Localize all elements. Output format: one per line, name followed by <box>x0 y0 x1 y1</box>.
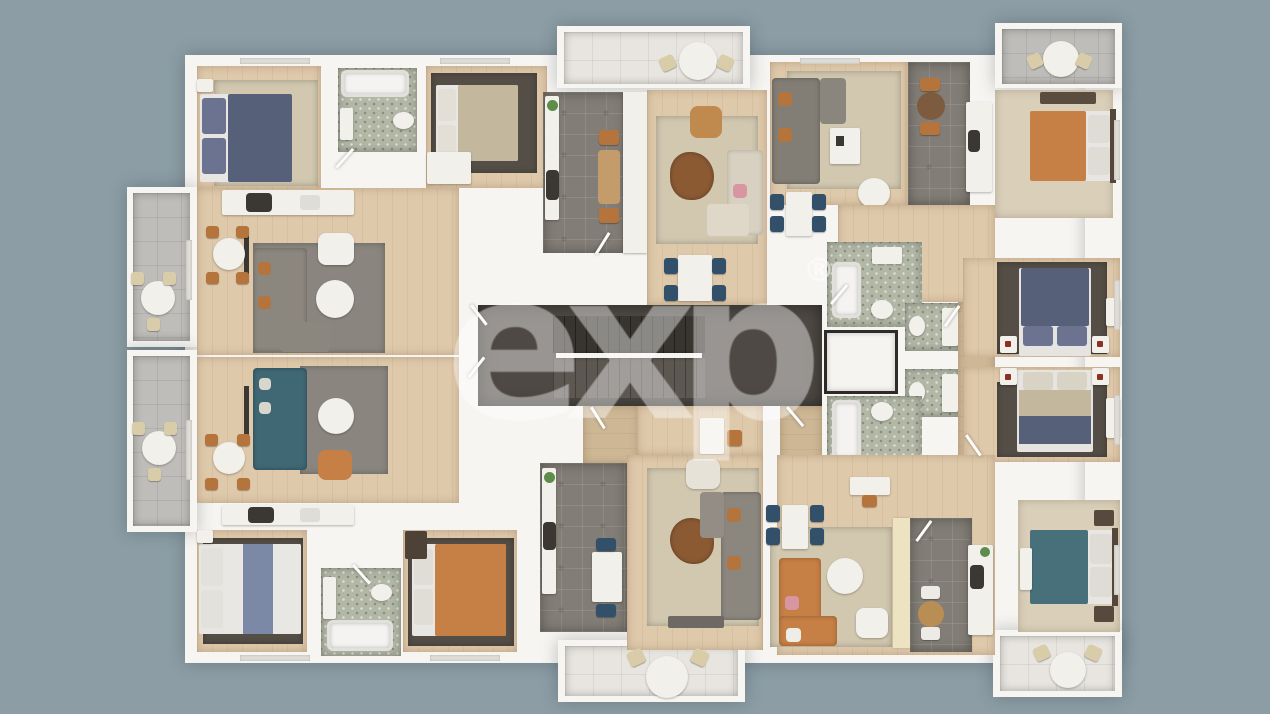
bed-pillow <box>1090 534 1112 564</box>
window <box>440 58 510 64</box>
bed-duvet <box>458 85 518 161</box>
coffee-table <box>827 558 863 594</box>
bathroom-sink <box>323 577 336 619</box>
toilet <box>871 300 893 319</box>
bed-double-navy <box>200 94 292 182</box>
console-decor <box>836 136 844 146</box>
swivel-chair <box>858 178 890 208</box>
patio-table <box>141 281 175 315</box>
sofa-pillow <box>733 184 747 198</box>
watermark-registered-icon: ® <box>803 251 835 289</box>
bed-pillow <box>1090 567 1112 597</box>
sofa-chaise <box>700 492 724 538</box>
stove-cooktop <box>248 507 274 523</box>
patio-table <box>679 42 717 80</box>
bed-pillow <box>202 98 226 134</box>
bed-duvet <box>228 94 292 182</box>
bathroom-sink <box>872 247 902 264</box>
wc-vanity <box>942 308 958 346</box>
dining-chair <box>236 272 249 284</box>
stove-cooktop <box>968 130 980 152</box>
sofa-pillow <box>778 92 792 106</box>
plant <box>980 547 990 557</box>
nightstand <box>197 530 213 543</box>
nightstand <box>197 79 213 92</box>
dining-chair <box>206 226 219 238</box>
bed-duvet <box>1021 268 1089 326</box>
elevator <box>824 330 898 394</box>
window <box>1114 120 1120 180</box>
toilet <box>909 316 925 336</box>
kitchen-chair <box>596 538 616 551</box>
dining-chair <box>237 434 250 446</box>
kitchen-chair <box>596 604 616 617</box>
kitchen-chair <box>599 130 619 145</box>
sofa-pillow <box>785 596 799 610</box>
toilet <box>871 402 893 421</box>
stove-cooktop <box>246 193 272 212</box>
sofa-pillow <box>258 262 271 275</box>
stove-cooktop <box>546 170 559 200</box>
bed-pillow <box>1023 372 1053 390</box>
coffee-table <box>670 152 714 200</box>
bed-double-beige <box>436 85 518 161</box>
kitchen-chair <box>599 208 619 223</box>
bed-pillow <box>438 89 456 121</box>
window <box>430 655 500 661</box>
bathroom-sink <box>340 108 353 140</box>
armchair <box>690 106 722 138</box>
nightstand <box>1094 510 1114 526</box>
window <box>240 655 310 661</box>
sofa-chaise <box>280 322 330 352</box>
dining-table <box>213 442 245 474</box>
bathtub <box>327 620 393 651</box>
kitchen-chair <box>920 78 940 91</box>
bed-double-orange <box>1030 111 1114 181</box>
bed-duvet <box>1019 416 1091 444</box>
kitchen-sink <box>300 508 320 522</box>
stove-cooktop <box>970 565 984 589</box>
bed-pillow <box>1057 372 1087 390</box>
sofa-pillow <box>259 402 271 414</box>
closet-panel <box>893 518 910 648</box>
desk-stool <box>862 495 877 507</box>
sofa-pillow <box>258 296 271 309</box>
dining-chair <box>810 528 824 545</box>
kitchen-sink <box>300 195 320 210</box>
wc-vanity <box>942 374 958 412</box>
bed-blanket <box>1019 390 1091 416</box>
sofa-chaise <box>820 78 846 124</box>
bed-duvet <box>435 544 506 636</box>
kitchen-table <box>917 92 945 120</box>
plant <box>547 100 558 111</box>
shelf <box>1040 92 1096 104</box>
patio-table <box>142 431 176 465</box>
dining-chair <box>236 226 249 238</box>
dining-chair <box>812 216 826 232</box>
vanity-desk <box>850 477 890 495</box>
bed-duvet-stripe <box>243 544 273 634</box>
stove-cooktop <box>543 522 556 550</box>
dining-table <box>213 238 245 270</box>
balcony-left-upper-floor <box>133 193 190 341</box>
bed-double-blue-white <box>199 544 301 634</box>
kitchen-table <box>918 601 944 627</box>
armchair <box>856 608 888 638</box>
patio-table <box>1043 41 1079 77</box>
window <box>1114 395 1120 445</box>
kitchen-table <box>592 552 622 602</box>
dining-chair <box>205 434 218 446</box>
wardrobe <box>427 152 471 184</box>
floor-plan-render: exp ® <box>0 0 1270 714</box>
plant <box>544 472 555 483</box>
kitchen-counter <box>222 190 354 215</box>
bed-pillow <box>1023 326 1053 346</box>
bed-double-beige-navy <box>1017 370 1093 452</box>
dining-chair <box>237 478 250 490</box>
coffee-table <box>318 398 354 434</box>
kitchen-counter <box>545 96 559 220</box>
patio-chair <box>164 422 177 435</box>
patio-chair <box>163 272 176 285</box>
watermark-exp-logo: exp <box>445 246 803 451</box>
bathtub <box>341 70 409 97</box>
bed-double-navy <box>1019 268 1091 356</box>
bed-pillow <box>201 548 223 586</box>
dining-chair <box>812 194 826 210</box>
toilet <box>393 112 414 129</box>
wardrobe <box>405 531 427 559</box>
watermark-text: exp <box>445 229 803 467</box>
dining-chair <box>810 505 824 522</box>
coffee-table <box>316 280 354 318</box>
dining-chair <box>206 272 219 284</box>
bed-pillow <box>1057 326 1087 346</box>
window <box>1114 280 1120 330</box>
bed-double-teal <box>1030 530 1116 604</box>
nightstand <box>1094 606 1114 622</box>
nightstand-decor <box>1005 374 1011 380</box>
patio-table <box>646 656 688 698</box>
bench <box>668 616 724 628</box>
patio-table <box>1050 652 1086 688</box>
window <box>1114 545 1120 595</box>
sofa-pillow <box>727 556 741 570</box>
patio-chair <box>132 422 145 435</box>
bed-pillow <box>1088 147 1110 175</box>
dining-chair <box>766 505 780 522</box>
kitchen-chair <box>921 627 940 640</box>
patio-chair <box>147 318 160 331</box>
kitchen-table <box>598 150 620 204</box>
window <box>800 58 860 64</box>
nightstand-decor <box>1005 341 1011 347</box>
kitchen-counter <box>222 505 354 525</box>
sofa-pillow <box>786 628 801 642</box>
media-console <box>830 128 860 164</box>
window <box>186 240 192 300</box>
window <box>240 58 310 64</box>
bathtub <box>832 262 861 318</box>
kitchen-counter <box>968 545 993 635</box>
kitchen-chair <box>920 122 940 135</box>
dining-table <box>782 505 808 549</box>
patio-chair <box>148 468 161 481</box>
nightstand-decor <box>1097 341 1103 347</box>
bed-pillow <box>201 590 223 628</box>
patio-chair <box>131 272 144 285</box>
armchair-orange <box>318 450 352 480</box>
window <box>186 420 192 480</box>
dining-chair <box>770 194 784 210</box>
armchair <box>318 233 354 265</box>
bathtub <box>832 400 861 460</box>
sofa-pillow <box>259 378 271 390</box>
bench <box>1020 548 1032 590</box>
bed-pillow <box>414 589 433 625</box>
dining-chair <box>766 528 780 545</box>
nightstand-decor <box>1097 374 1103 380</box>
sofa-pillow <box>727 508 741 522</box>
kitchen-chair <box>921 586 940 599</box>
dining-chair <box>205 478 218 490</box>
bed-duvet <box>1030 111 1086 181</box>
bed-pillow <box>1088 115 1110 143</box>
toilet <box>371 584 392 601</box>
sofa-pillow <box>778 128 792 142</box>
bed-pillow <box>202 138 226 174</box>
bed-duvet <box>1030 530 1088 604</box>
tv-console <box>244 386 249 440</box>
